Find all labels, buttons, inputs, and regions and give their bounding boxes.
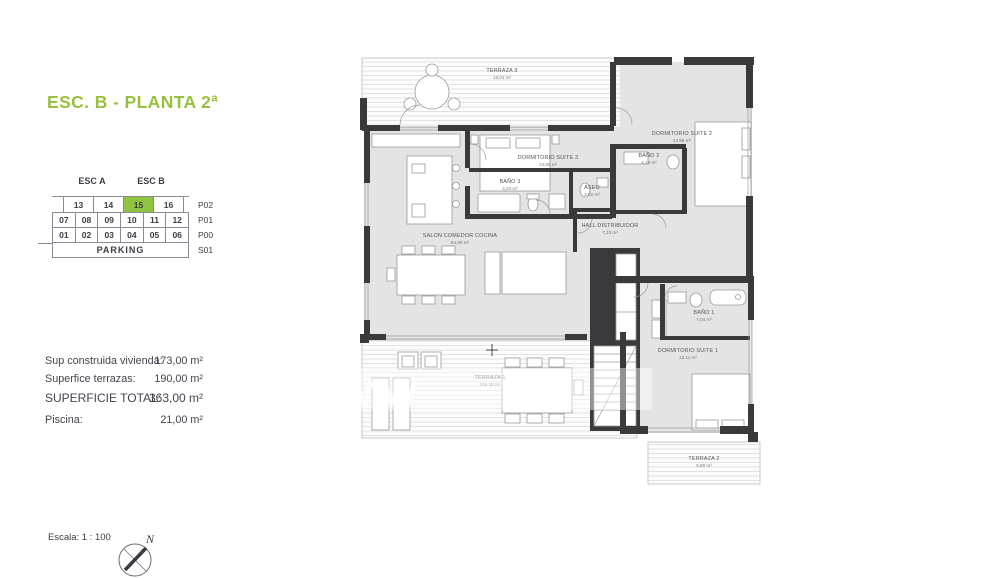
floor-row-p00: 01 02 03 04 05 06: [52, 227, 189, 243]
unit-15-selected[interactable]: 15: [123, 197, 153, 212]
floor-label-p01: P01: [198, 212, 213, 228]
unit-02[interactable]: 02: [75, 228, 98, 242]
compass-n: N: [145, 532, 155, 546]
watermark: www: [352, 363, 652, 415]
surface-label: Superfice terrazas:: [45, 373, 136, 385]
unit-07[interactable]: 07: [53, 213, 75, 227]
floor-row-p02: 13 14 15 16: [63, 196, 184, 213]
surface-label: Sup construida vivienda:: [45, 355, 163, 367]
bano3-area: 4,24 m²: [502, 186, 518, 191]
unit-05[interactable]: 05: [143, 228, 166, 242]
page-title: ESC. B - PLANTA 2ª: [47, 92, 218, 113]
surface-label: SUPERFICIE TOTAL:: [45, 391, 161, 405]
bano1-label: BAÑO 1: [694, 309, 715, 316]
unit-16[interactable]: 16: [153, 197, 183, 212]
unit-selector: ESC A ESC B 13 14 15 16 07 08 09 10 11 1…: [38, 176, 238, 271]
floor-row-p01: 07 08 09 10 11 12: [52, 212, 189, 228]
floor-label-p00: P00: [198, 227, 213, 243]
surface-value: 363,00 m²: [149, 391, 203, 405]
unit-04[interactable]: 04: [120, 228, 143, 242]
unit-12[interactable]: 12: [165, 213, 188, 227]
suite1-label: DORMITORIO SUITE 1: [658, 348, 718, 354]
bano2-label: BAÑO 2: [639, 152, 660, 159]
floor-plan: TERRAZA 3 18,01 m² DORMITORIO SUITE 3 14…: [352, 48, 767, 493]
unit-13[interactable]: 13: [64, 197, 93, 212]
floor-label-s01: S01: [198, 242, 213, 258]
bano1-area: 7,04 m²: [696, 317, 712, 322]
aseo-label: ASEO: [584, 185, 600, 191]
esc-a-label: ESC A: [78, 176, 105, 186]
suite2-label: DORMITORIO SUITE 2: [652, 131, 712, 137]
surface-value: 190,00 m²: [154, 373, 203, 385]
suite2-area: 14,98 m²: [673, 138, 692, 143]
unit-08[interactable]: 08: [75, 213, 98, 227]
suite1-area: 22,11 m²: [679, 355, 697, 360]
hall-label: HALL DISTRIBUIDOR: [582, 223, 639, 229]
unit-10[interactable]: 10: [120, 213, 143, 227]
watermark-text: www: [352, 363, 426, 415]
surface-label: Piscina:: [45, 414, 83, 426]
terraza3-area: 18,01 m²: [493, 75, 512, 80]
surface-value: 21,00 m²: [160, 414, 203, 426]
suite3-area: 14,60 m²: [539, 162, 558, 167]
surface-value: 173,00 m²: [154, 355, 203, 367]
salon-area: 64,98 m²: [451, 240, 470, 245]
salon-label: SALON COMEDOR COCINA: [423, 233, 498, 239]
esc-b-label: ESC B: [137, 176, 165, 186]
floor-row-s01: PARKING: [52, 242, 189, 258]
hall-area: 7,33 m²: [602, 230, 618, 235]
unit-11[interactable]: 11: [143, 213, 166, 227]
aseo-area: 2,02 m²: [584, 192, 600, 197]
terraza2-area: 5,80 m²: [696, 463, 712, 468]
unit-09[interactable]: 09: [97, 213, 120, 227]
surface-row-terrazas: Superfice terrazas: 190,00 m²: [45, 373, 203, 385]
suite3-label: DORMITORIO SUITE 3: [518, 155, 578, 161]
floor-label-p02: P02: [198, 196, 213, 213]
unit-14[interactable]: 14: [93, 197, 123, 212]
bano2-area: 4,19 m²: [641, 160, 657, 165]
surface-row-piscina: Piscina: 21,00 m²: [45, 414, 203, 426]
surface-row-vivienda: Sup construida vivienda: 173,00 m²: [45, 355, 203, 367]
surface-row-total: SUPERFICIE TOTAL: 363,00 m²: [45, 391, 203, 405]
parking-cell[interactable]: PARKING: [53, 243, 188, 257]
bano3-label: BAÑO 3: [500, 178, 521, 185]
compass-icon: N: [110, 528, 160, 578]
unit-06[interactable]: 06: [165, 228, 188, 242]
scale-label: Escala: 1 : 100: [48, 532, 111, 543]
terraza3-label: TERRAZA 3: [486, 68, 517, 74]
unit-01[interactable]: 01: [53, 228, 75, 242]
floorplan-page: ESC. B - PLANTA 2ª ESC A ESC B 13 14 15 …: [0, 0, 1000, 578]
unit-03[interactable]: 03: [97, 228, 120, 242]
selector-groundline: [38, 243, 52, 244]
terraza2-label: TERRAZA 2: [688, 456, 719, 462]
